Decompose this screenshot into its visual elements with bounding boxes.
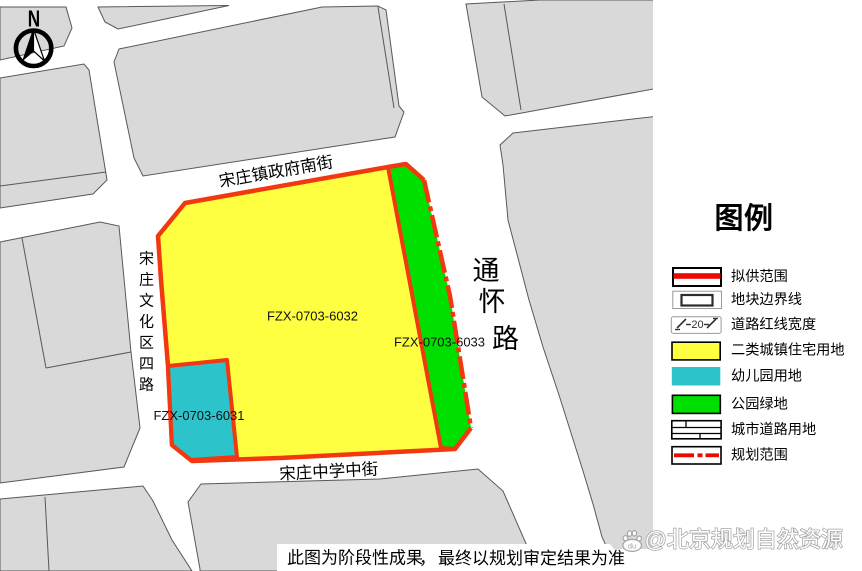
svg-text:FZX-0703-6031: FZX-0703-6031 [153, 408, 244, 423]
svg-text:宋庄文化区四路: 宋庄文化区四路 [139, 251, 154, 394]
svg-text:地块边界线: 地块边界线 [731, 292, 802, 308]
svg-text:道路红线宽度: 道路红线宽度 [731, 316, 816, 333]
svg-text:城市道路用地: 城市道路用地 [731, 421, 816, 438]
svg-text:图例: 图例 [714, 201, 773, 235]
svg-text:N: N [28, 6, 40, 32]
svg-text:FZX-0703-6033: FZX-0703-6033 [394, 335, 485, 350]
svg-text:@北京规划自然资源: @北京规划自然资源 [645, 527, 843, 552]
svg-text:此图为阶段性成果，最终以规划审定结果为准: 此图为阶段性成果，最终以规划审定结果为准 [287, 549, 625, 568]
svg-text:公园绿地: 公园绿地 [731, 397, 788, 413]
svg-text:20: 20 [691, 319, 703, 331]
svg-text:规划范围: 规划范围 [731, 447, 788, 464]
svg-text:FZX-0703-6032: FZX-0703-6032 [267, 309, 358, 324]
svg-text:du: du [628, 542, 636, 551]
svg-text:二类城镇住宅用地: 二类城镇住宅用地 [731, 343, 845, 359]
svg-text:拟供范围: 拟供范围 [731, 268, 788, 285]
svg-text:幼儿园用地: 幼儿园用地 [731, 369, 802, 385]
